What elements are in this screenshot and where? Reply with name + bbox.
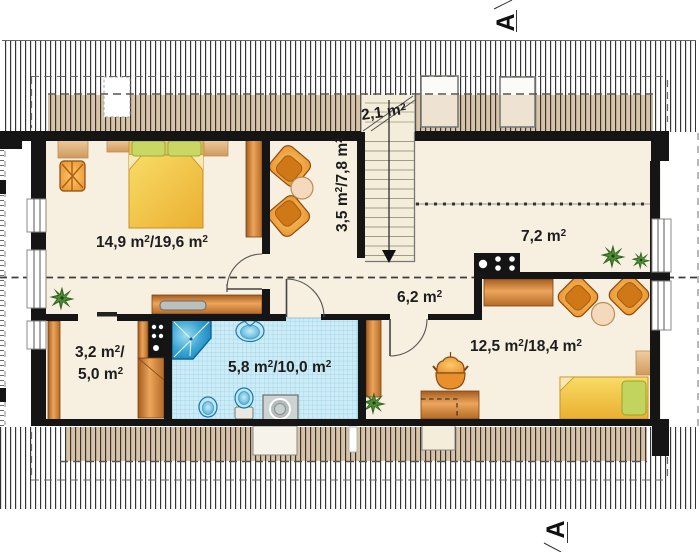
svg-text:12,5 m2/18,4 m2: 12,5 m2/18,4 m2 (470, 338, 582, 355)
svg-text:A: A (542, 520, 570, 538)
svg-text:3,5 m2/7,8 m2: 3,5 m2/7,8 m2 (334, 137, 351, 232)
svg-text:14,9 m2/19,6 m2: 14,9 m2/19,6 m2 (96, 234, 208, 251)
svg-text:6,2 m2: 6,2 m2 (397, 289, 443, 306)
svg-text:5,0 m2: 5,0 m2 (78, 366, 124, 383)
svg-text:5,8 m2/10,0 m2: 5,8 m2/10,0 m2 (228, 359, 332, 376)
svg-text:A: A (492, 13, 520, 31)
svg-text:7,2 m2: 7,2 m2 (521, 228, 567, 245)
